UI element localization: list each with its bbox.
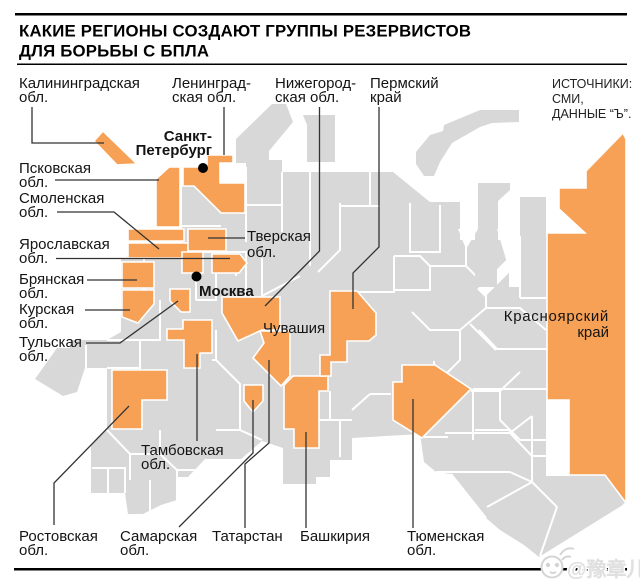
svg-text:обл.: обл. (120, 542, 149, 559)
svg-text:Башкирия: Башкирия (300, 528, 370, 545)
svg-text:ДЛЯ БОРЬБЫ С БПЛА: ДЛЯ БОРЬБЫ С БПЛА (19, 42, 209, 61)
svg-text:ДАННЫЕ “Ъ”.: ДАННЫЕ “Ъ”. (552, 107, 631, 121)
svg-text:Тверская: Тверская (247, 228, 311, 245)
svg-text:ская обл.: ская обл. (275, 89, 339, 106)
svg-text:Чувашия: Чувашия (263, 320, 325, 337)
svg-text:обл.: обл. (19, 89, 48, 106)
svg-text:КАКИЕ РЕГИОНЫ СОЗДАЮТ ГРУППЫ Р: КАКИЕ РЕГИОНЫ СОЗДАЮТ ГРУППЫ РЕЗЕРВИСТОВ (19, 22, 471, 41)
svg-text:край: край (577, 324, 609, 341)
svg-text:обл.: обл. (19, 315, 48, 332)
svg-text:обл.: обл. (19, 204, 48, 221)
svg-text:Красноярский: Красноярский (504, 308, 609, 325)
svg-text:ская обл.: ская обл. (172, 89, 236, 106)
svg-text:обл.: обл. (19, 285, 48, 302)
svg-text:@豫章儿: @豫章儿 (567, 557, 640, 581)
svg-text:обл.: обл. (247, 244, 276, 261)
svg-text:СМИ,: СМИ, (552, 92, 584, 106)
svg-text:Москва: Москва (199, 283, 254, 300)
svg-text:обл.: обл. (141, 456, 170, 473)
svg-text:обл.: обл. (407, 542, 436, 559)
svg-text:Петербург: Петербург (136, 142, 212, 159)
svg-text:ИСТОЧНИКИ:: ИСТОЧНИКИ: (552, 77, 632, 91)
svg-text:обл.: обл. (19, 542, 48, 559)
svg-text:обл.: обл. (19, 250, 48, 267)
svg-text:край: край (370, 89, 402, 106)
svg-text:обл.: обл. (19, 348, 48, 365)
svg-text:Татарстан: Татарстан (212, 528, 283, 545)
svg-text:обл.: обл. (19, 174, 48, 191)
